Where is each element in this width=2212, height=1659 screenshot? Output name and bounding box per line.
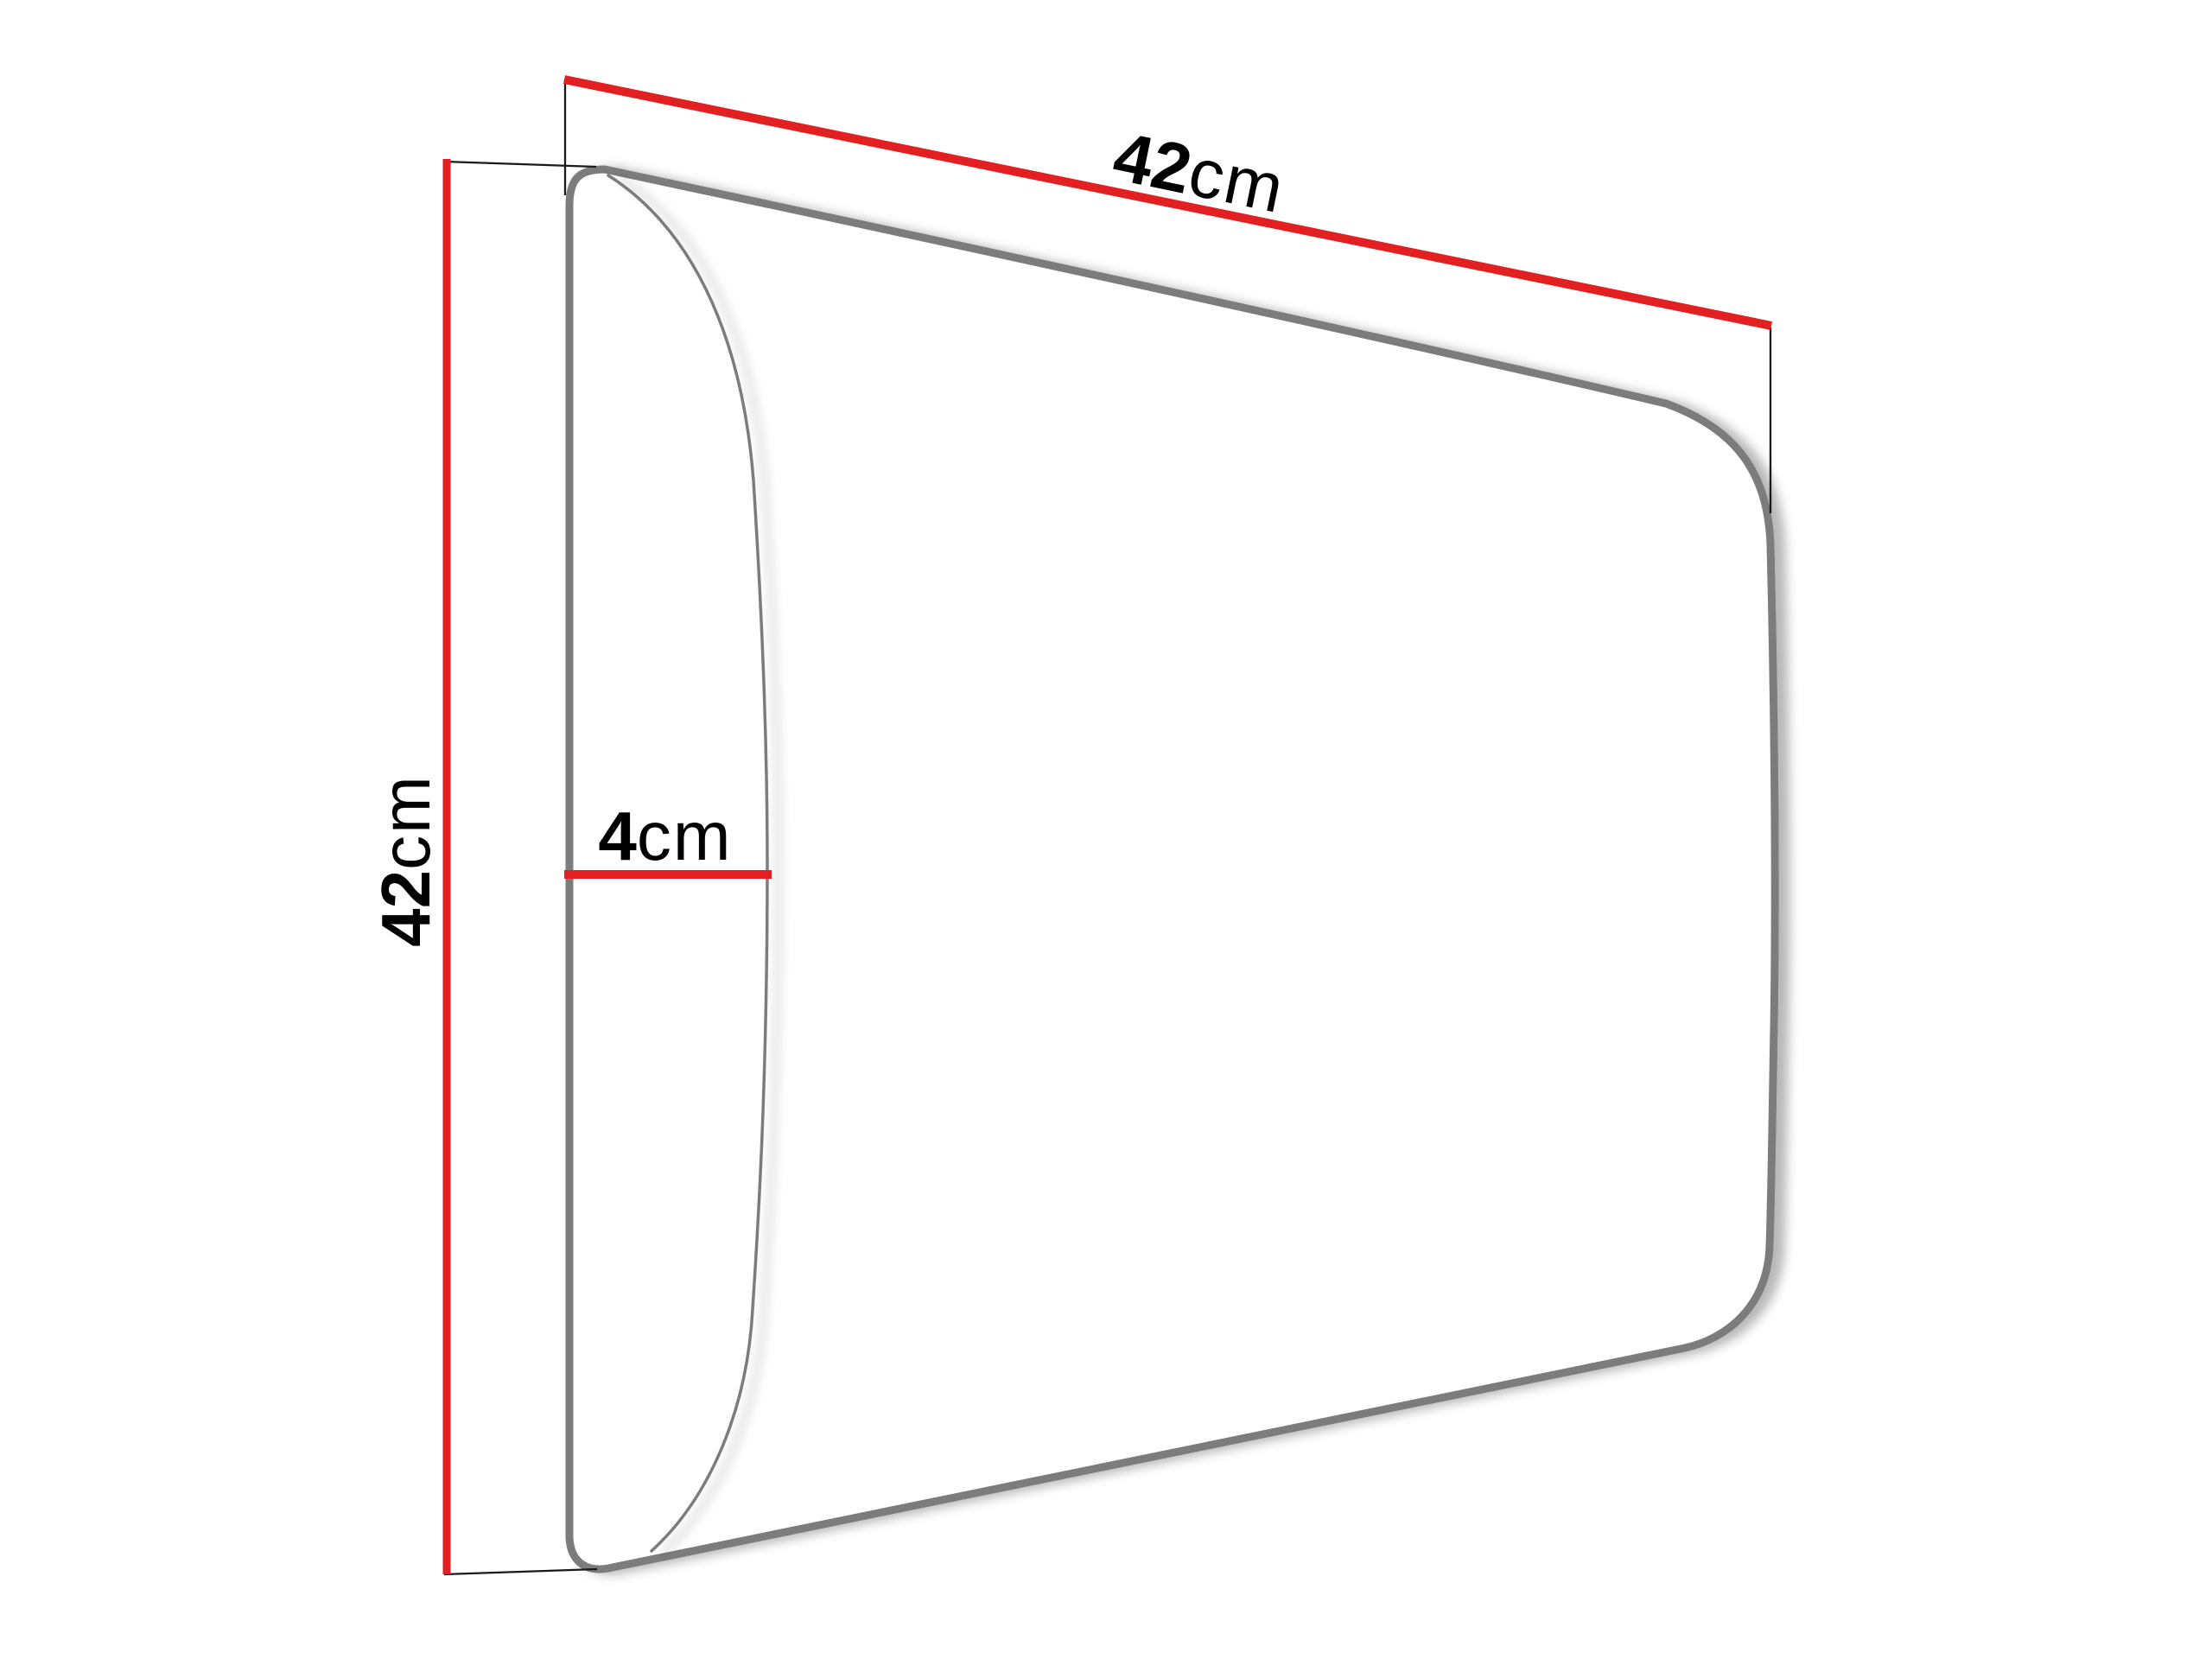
dimension-diagram: 42cm 42cm 4cm bbox=[0, 0, 2212, 1659]
depth-value: 4 bbox=[598, 798, 637, 874]
height-dimension-label: 42cm bbox=[372, 774, 441, 947]
height-value: 42 bbox=[367, 870, 444, 947]
panel-drawing bbox=[0, 0, 2212, 1659]
extension-line-top-left-horizontal bbox=[444, 162, 596, 167]
height-unit: cm bbox=[367, 774, 444, 870]
extension-line-bottom-left-horizontal bbox=[444, 1569, 597, 1574]
depth-dimension-label: 4cm bbox=[598, 802, 732, 871]
panel-outline bbox=[569, 169, 1775, 1569]
depth-unit: cm bbox=[637, 798, 733, 874]
